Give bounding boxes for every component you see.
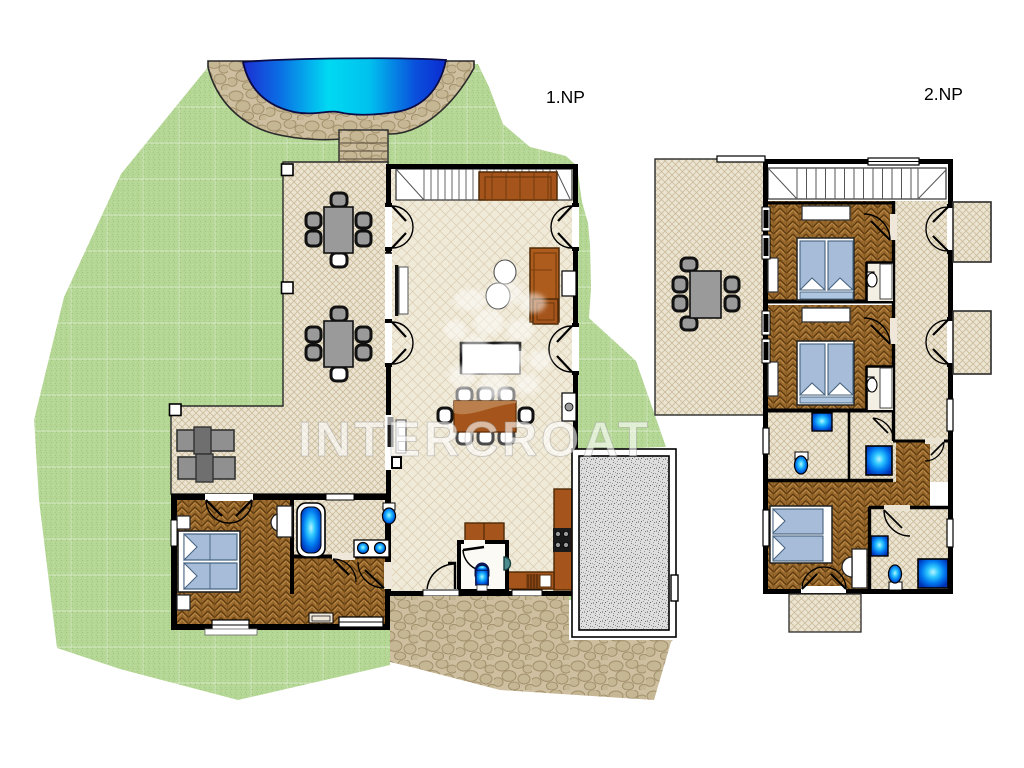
svg-text:1.NP: 1.NP [546,87,585,107]
svg-text:INTERCROAT: INTERCROAT [298,413,652,467]
svg-text:2.NP: 2.NP [924,84,963,104]
